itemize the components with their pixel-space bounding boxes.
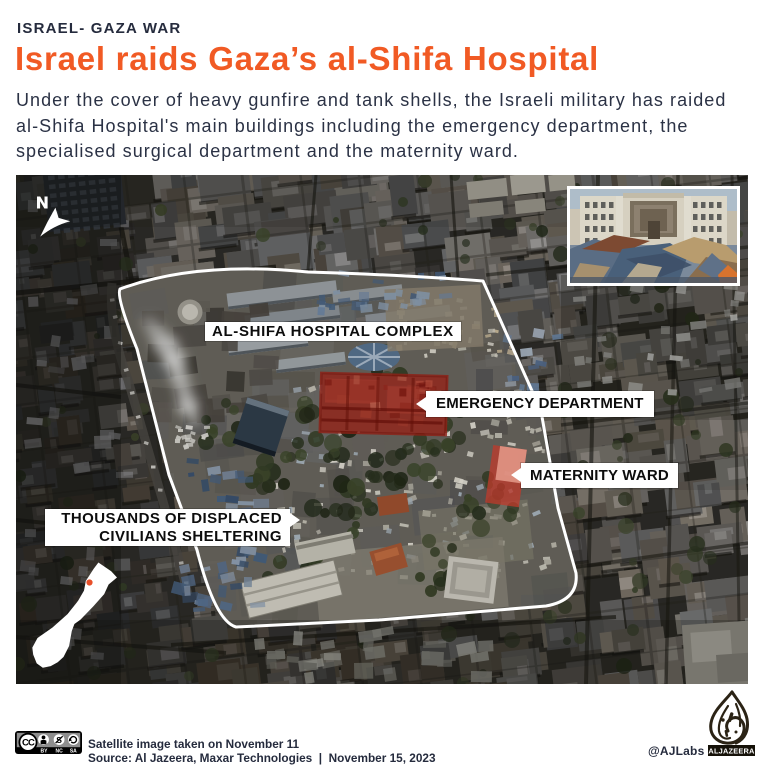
svg-text:NC: NC — [55, 748, 63, 754]
svg-text:ALJAZEERA: ALJAZEERA — [708, 746, 755, 755]
svg-text:SA: SA — [70, 748, 77, 754]
svg-text:CC: CC — [22, 738, 35, 749]
svg-text:BY: BY — [41, 748, 49, 754]
